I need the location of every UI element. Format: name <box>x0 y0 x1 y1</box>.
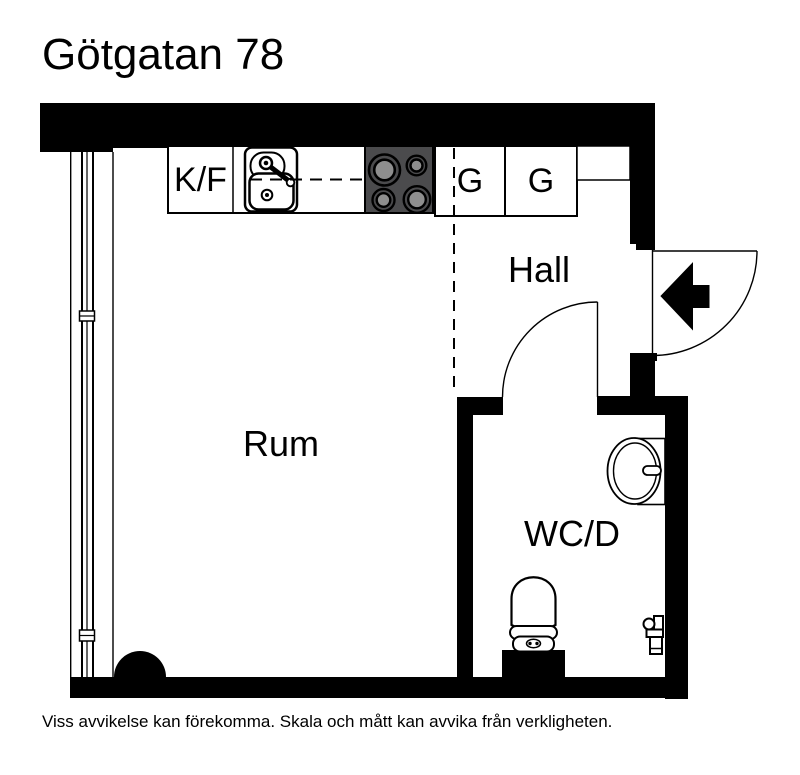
cabinet-label-wardrobe-2: G <box>505 146 577 216</box>
washbasin-icon <box>608 438 666 505</box>
stove-icon <box>365 146 433 213</box>
window-icon <box>71 152 113 677</box>
radiator-icon <box>114 651 166 677</box>
wall-right-upper <box>630 103 655 244</box>
sink-drain-dot <box>265 193 269 197</box>
mixer-handle <box>644 619 655 630</box>
toilet-icon <box>510 577 557 651</box>
floor-plan-drawing <box>0 0 800 775</box>
floor-plan-page: Götgatan 78 <box>0 0 800 775</box>
toilet-bowl <box>512 577 556 630</box>
bathroom-door-arc <box>503 302 598 397</box>
wall-bottom <box>70 677 688 698</box>
shower-mixer-icon <box>644 616 664 654</box>
room-label-wcd: WC/D <box>492 500 652 568</box>
burner <box>374 160 395 181</box>
wall-top <box>40 103 655 148</box>
wall-top-left-corner <box>40 103 113 152</box>
toilet-pedestal <box>502 650 565 678</box>
wall-wc-top-right <box>597 396 688 415</box>
wall-wc-right <box>665 415 688 699</box>
door-jamb-top <box>636 244 655 250</box>
cabinet-label-wardrobe-1: G <box>435 146 505 216</box>
mixer-body <box>650 637 662 654</box>
disclaimer-text: Viss avvikelse kan förekomma. Skala och … <box>42 711 612 733</box>
wall-wc-left <box>457 397 473 678</box>
wall-right-mid <box>630 353 655 396</box>
burner <box>411 160 423 172</box>
hall-shelf-cabinet <box>577 146 630 180</box>
room-label-hall: Hall <box>479 236 599 304</box>
burner <box>408 191 426 209</box>
bathroom-door-swing <box>503 302 598 397</box>
room-label-rum: Rum <box>201 410 361 478</box>
washbasin-tap <box>643 466 661 475</box>
mixer-bar <box>647 630 664 638</box>
toilet-flush-dot <box>535 642 538 645</box>
toilet-flush-dot <box>528 642 531 645</box>
entry-arrow-icon <box>659 260 711 334</box>
burner <box>377 193 391 207</box>
cabinet-label-fridge-freezer: K/F <box>168 146 233 213</box>
faucet-dot <box>264 161 269 166</box>
